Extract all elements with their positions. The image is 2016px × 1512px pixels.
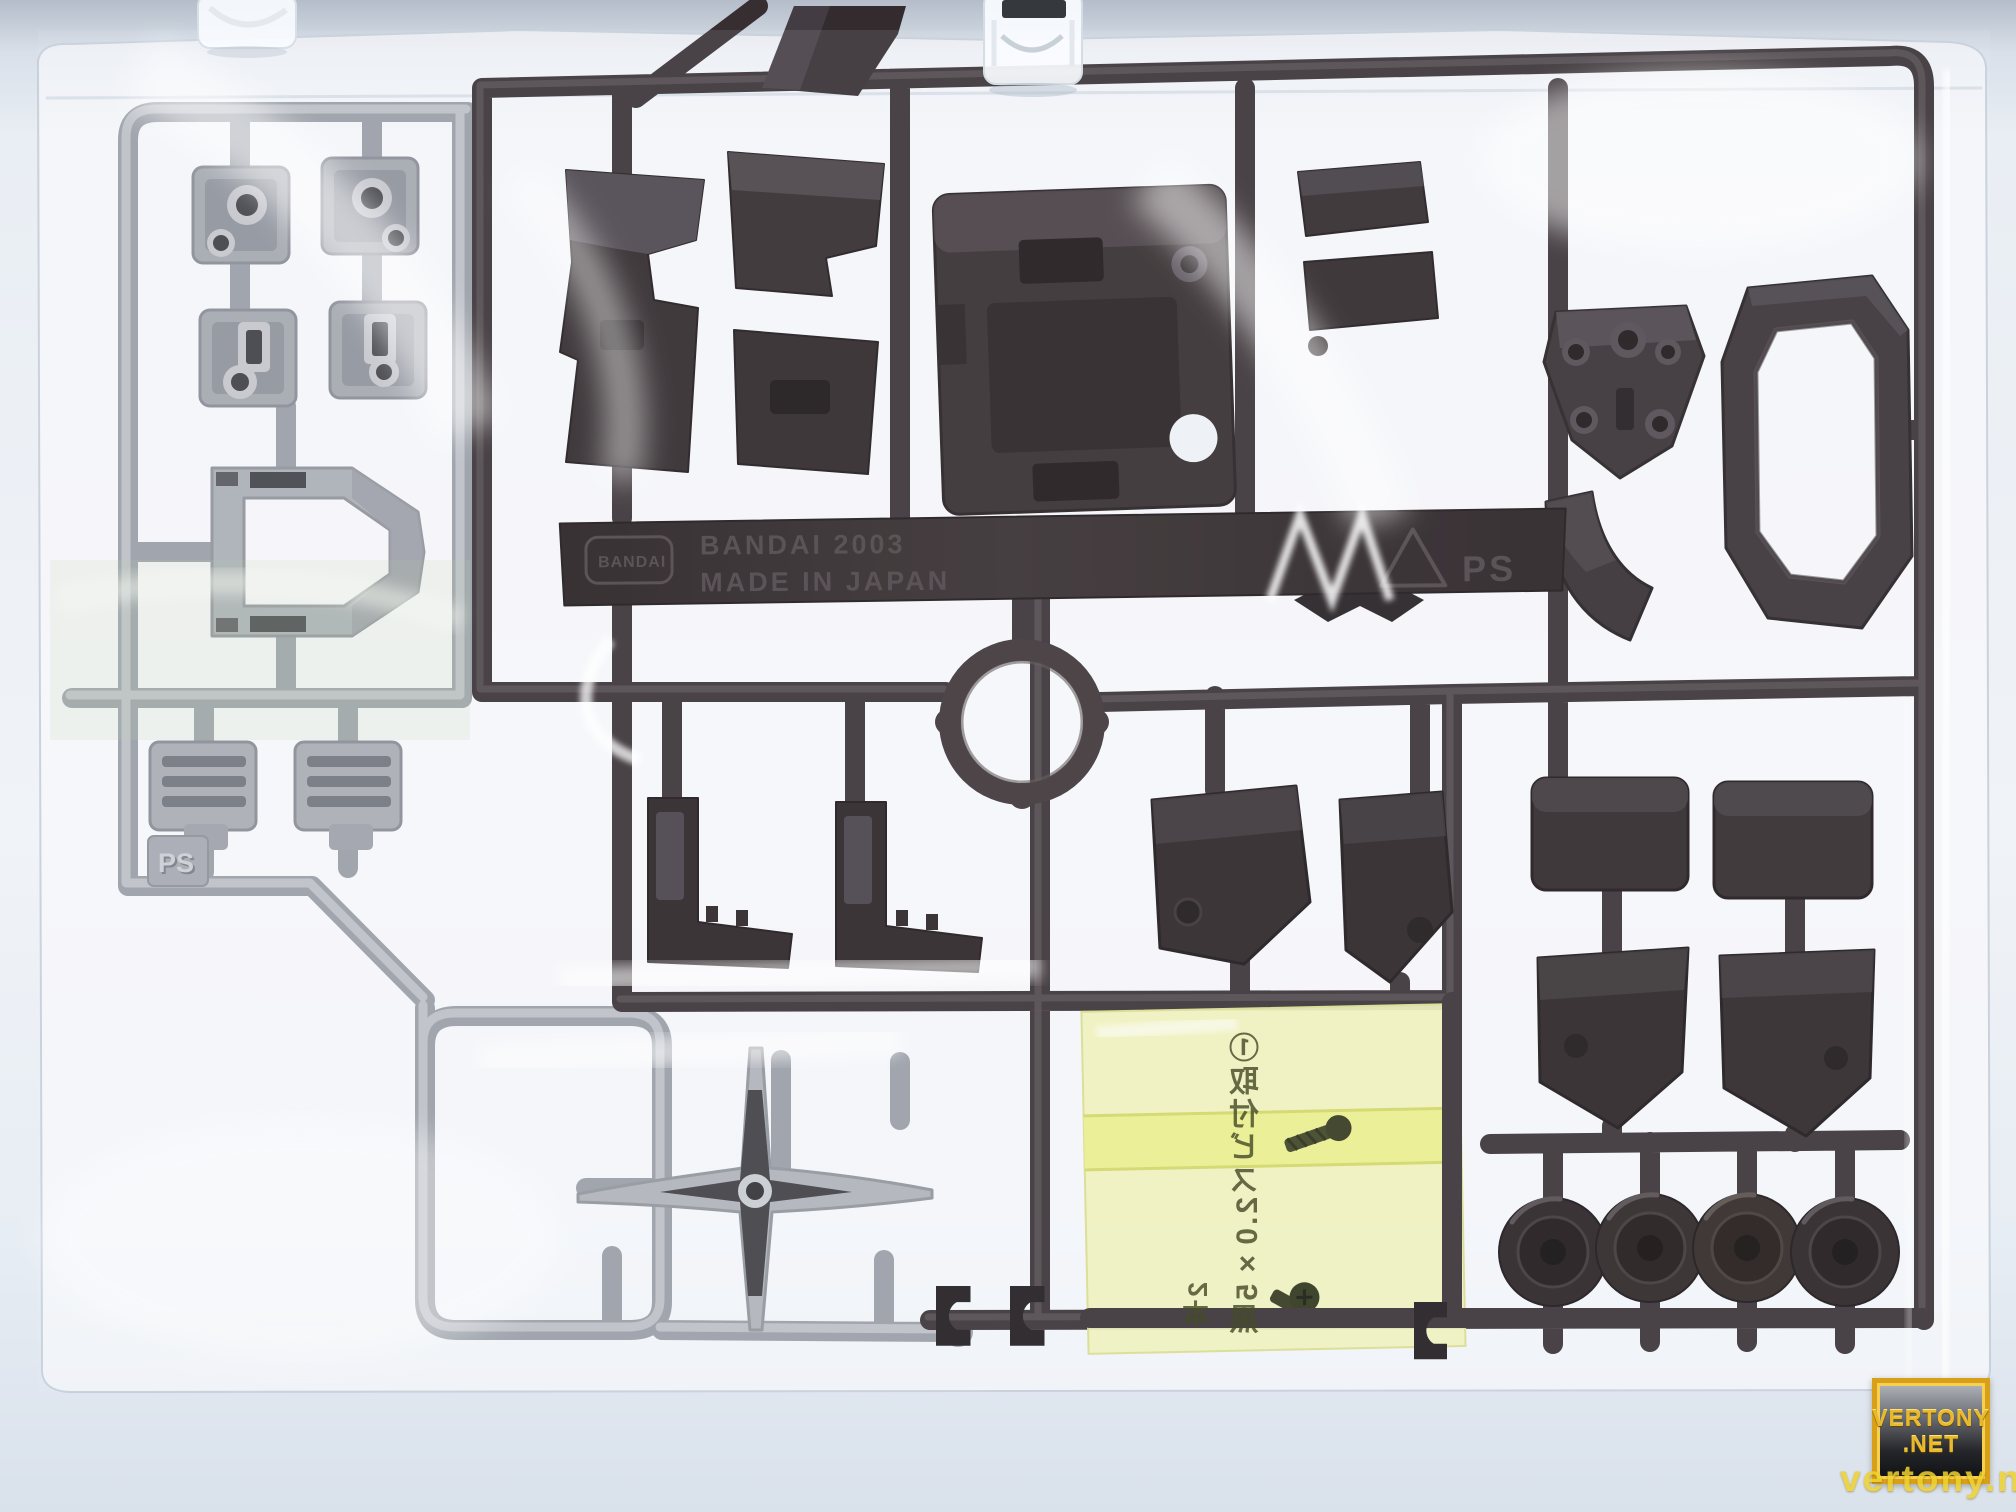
photo-canvas: PS PS bbox=[0, 0, 2016, 1512]
bag-clip-left bbox=[198, 0, 296, 58]
bag-clip-right bbox=[984, 0, 1082, 97]
photo-model-kit-runners-in-bag: PS PS bbox=[0, 0, 2016, 1512]
clip-dark-cap bbox=[1002, 0, 1066, 18]
